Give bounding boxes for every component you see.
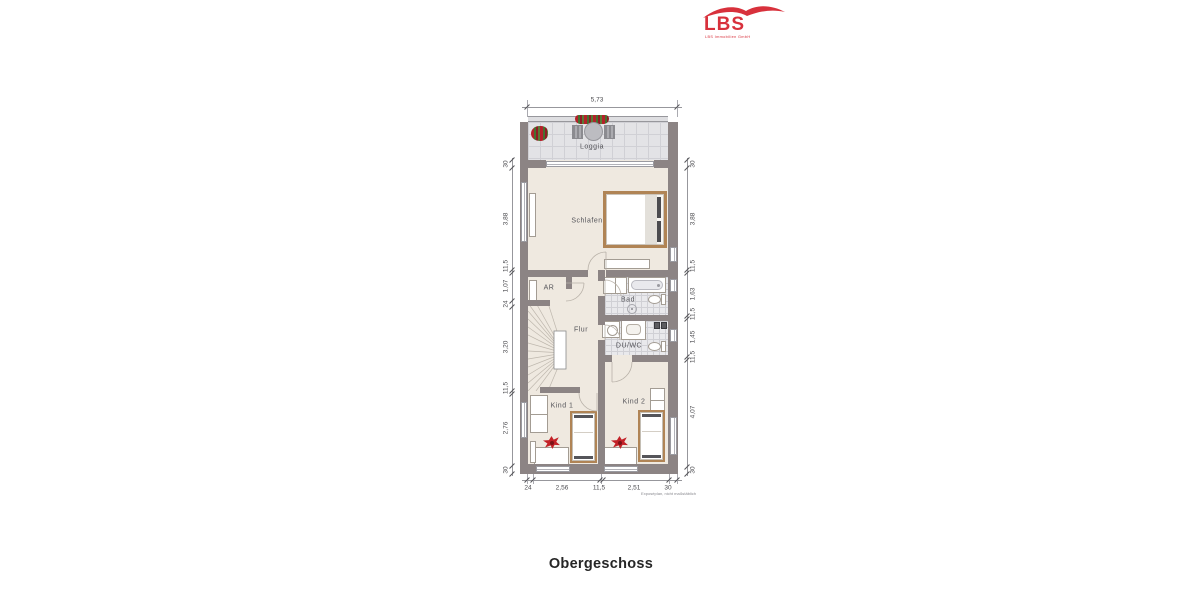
door-arc bbox=[605, 325, 620, 340]
dim-left-0: 30 bbox=[503, 160, 510, 167]
dim-right-0: 30 bbox=[690, 160, 697, 167]
dim-right-2: 11,5 bbox=[690, 260, 697, 272]
dim-left-6: 11,5 bbox=[503, 382, 510, 394]
dim-left-1: 3,88 bbox=[503, 213, 510, 226]
dim-chain-left bbox=[512, 158, 513, 476]
door-arc bbox=[566, 283, 584, 301]
dim-top-0: 5,73 bbox=[591, 97, 604, 104]
room-label-ar: AR bbox=[544, 285, 555, 292]
door-arc bbox=[612, 362, 632, 382]
dim-right-3: 1,63 bbox=[690, 288, 697, 301]
dim-bottom-2: 11,5 bbox=[593, 485, 605, 492]
dim-right-4: 11,5 bbox=[690, 308, 697, 320]
dim-left-8: 30 bbox=[503, 466, 510, 473]
dim-bottom-3: 2,51 bbox=[628, 485, 641, 492]
dim-left-4: 24 bbox=[503, 300, 510, 307]
door-arc bbox=[605, 280, 621, 296]
room-label-duwc: DU/WC bbox=[616, 343, 642, 350]
door-arc bbox=[579, 393, 597, 411]
logo-tagline: LBS Immobilien GmbH bbox=[705, 35, 750, 39]
room-label-flur: Flur bbox=[574, 327, 588, 334]
floor-plan-page: LBS LBS Immobilien GmbH bbox=[0, 0, 1200, 600]
room-label-schlafen: Schlafen bbox=[571, 218, 602, 225]
dim-right-1: 3,88 bbox=[690, 213, 697, 226]
dim-left-2: 11,5 bbox=[503, 260, 510, 272]
dim-left-7: 2,76 bbox=[503, 422, 510, 435]
dim-right-7: 4,07 bbox=[690, 406, 697, 419]
room-label-bad: Bad bbox=[621, 297, 635, 304]
door-swings bbox=[520, 96, 690, 496]
dim-left-3: 1,07 bbox=[503, 280, 510, 293]
floor-title: Obergeschoss bbox=[549, 556, 653, 572]
room-label-kind2: Kind 2 bbox=[623, 399, 646, 406]
dim-bottom-4: 30 bbox=[664, 485, 671, 492]
room-label-loggia: Loggia bbox=[580, 144, 604, 151]
dim-right-5: 1,45 bbox=[690, 331, 697, 344]
door-arc bbox=[588, 252, 606, 270]
lbs-logo: LBS LBS Immobilien GmbH bbox=[702, 4, 786, 38]
dim-right-6: 11,5 bbox=[690, 351, 697, 363]
plan-disclaimer: Exposéplan, nicht maßstäblich bbox=[641, 492, 696, 496]
room-label-kind1: Kind 1 bbox=[551, 403, 574, 410]
logo-wordmark: LBS bbox=[704, 15, 745, 34]
dim-left-5: 3,20 bbox=[503, 341, 510, 354]
dim-chain-top bbox=[522, 107, 682, 108]
dim-bottom-0: 24 bbox=[524, 485, 531, 492]
dim-bottom-1: 2,56 bbox=[556, 485, 569, 492]
dim-right-8: 30 bbox=[690, 466, 697, 473]
